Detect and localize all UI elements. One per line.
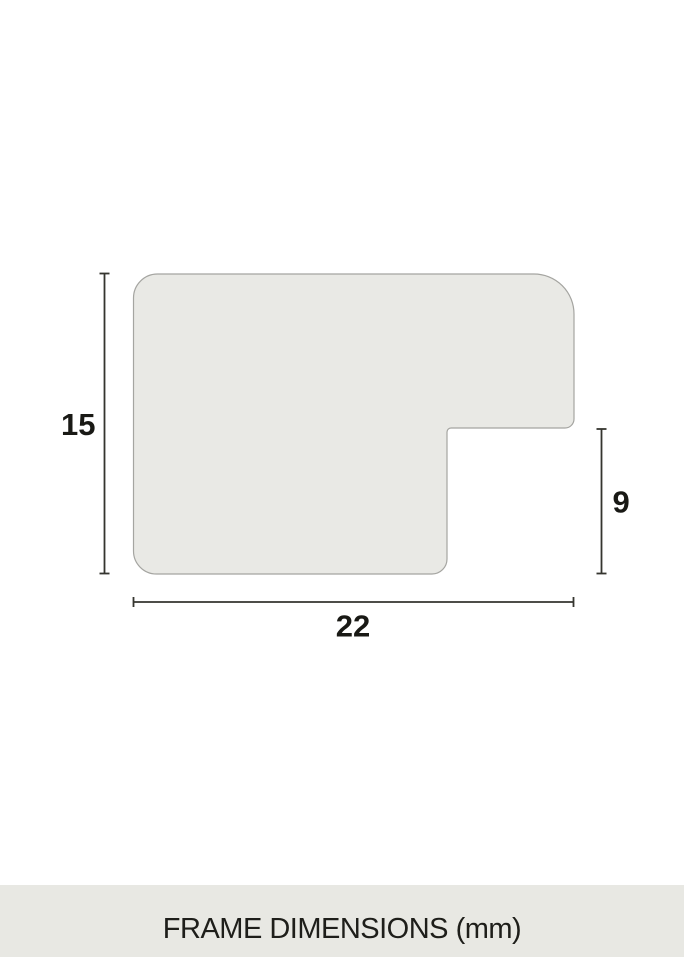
svg-text:22: 22 — [336, 609, 370, 644]
svg-text:15: 15 — [61, 407, 95, 442]
svg-text:9: 9 — [613, 485, 630, 520]
svg-text:FRAME DIMENSIONS (mm): FRAME DIMENSIONS (mm) — [163, 913, 521, 945]
